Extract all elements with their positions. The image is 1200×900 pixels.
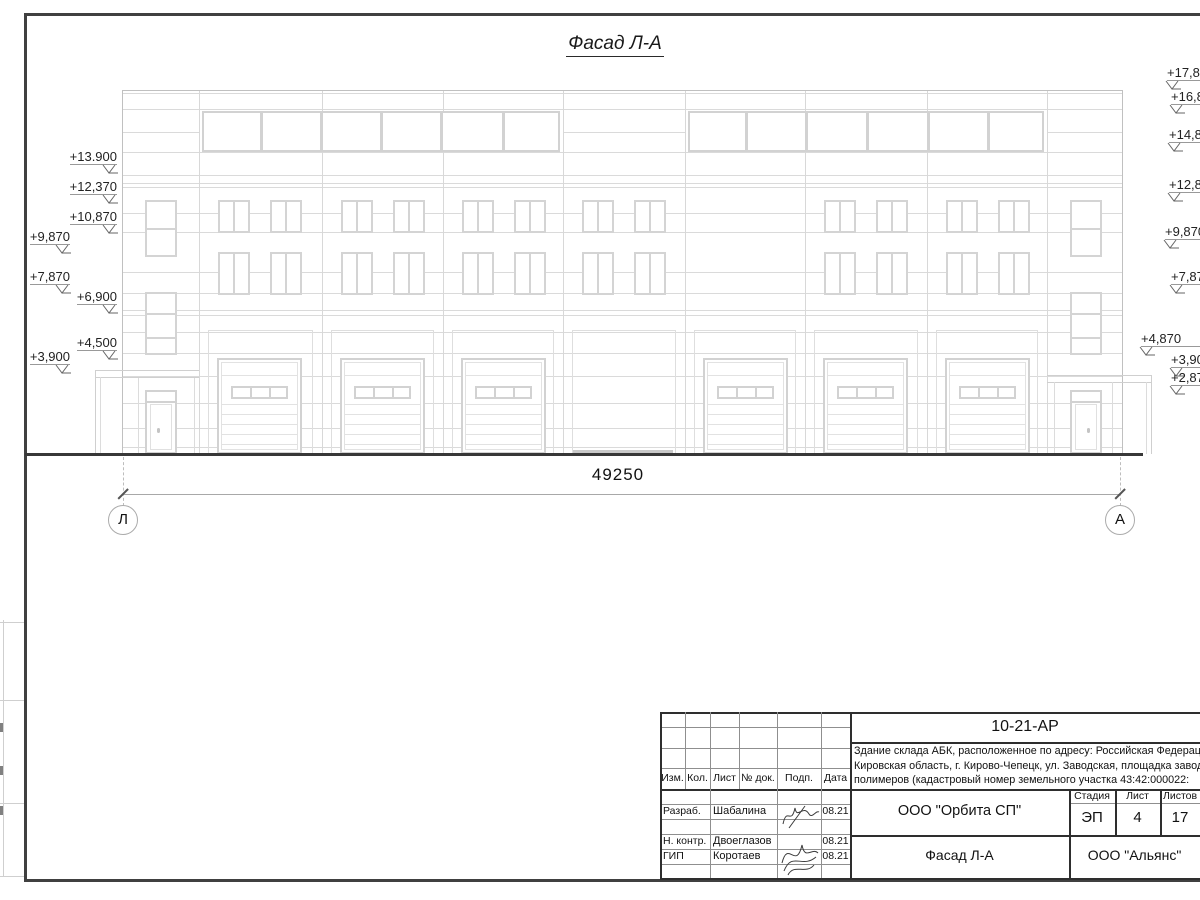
edge-table-line xyxy=(0,622,24,623)
level-arrow-icon xyxy=(102,304,119,315)
door-transom xyxy=(1072,401,1100,403)
window-rail xyxy=(1072,337,1100,339)
level-arrow-icon xyxy=(1169,385,1186,396)
garage-recess xyxy=(572,330,676,454)
level-arrow-icon xyxy=(1139,346,1156,357)
garage-slat xyxy=(708,424,783,425)
garage-slat xyxy=(466,444,541,445)
clerestory-mullion xyxy=(805,113,808,150)
facade-line xyxy=(122,187,1123,188)
garage-slat xyxy=(466,404,541,405)
level-arrow-icon xyxy=(55,244,72,255)
window-mullion xyxy=(649,202,651,231)
titleblock-line xyxy=(710,712,711,878)
ground-line xyxy=(25,453,1143,456)
elevation-mark: +9,870 xyxy=(30,230,70,245)
extension-line xyxy=(123,457,124,506)
window-mullion xyxy=(961,202,963,231)
garage-window-mullion xyxy=(755,388,757,397)
window-mullion xyxy=(529,202,531,231)
contractor: ООО "Альянс" xyxy=(1069,835,1200,878)
garage-window-mullion xyxy=(269,388,271,397)
facade-line xyxy=(122,175,1123,176)
garage-slat xyxy=(345,434,420,435)
window-mullion xyxy=(891,254,893,293)
col-izm: Изм. xyxy=(660,768,685,789)
window-rail xyxy=(147,337,175,339)
garage-slat xyxy=(950,404,1025,405)
sheet-label: Лист xyxy=(1115,789,1160,803)
edge-table-text-fragment xyxy=(0,766,3,775)
window-mullion xyxy=(233,202,235,231)
titleblock-line xyxy=(1069,789,1071,880)
window-mullion xyxy=(233,254,235,293)
elevation-mark: +3,900 xyxy=(1171,353,1200,368)
garage-window-strip xyxy=(837,386,894,399)
clerestory-mullion xyxy=(380,113,383,150)
col-list: Лист xyxy=(710,768,739,789)
stair-window xyxy=(1070,292,1102,355)
titleblock-line xyxy=(821,712,822,878)
garage-window-mullion xyxy=(997,388,999,397)
garage-window-strip xyxy=(959,386,1016,399)
facade-line xyxy=(122,109,1123,110)
signature-nkontr-gip xyxy=(776,833,820,877)
garage-slat xyxy=(950,444,1025,445)
garage-window-strip xyxy=(717,386,774,399)
stair-window xyxy=(145,292,177,355)
window-mullion xyxy=(1013,202,1015,231)
garage-slat xyxy=(466,414,541,415)
garage-slat xyxy=(345,424,420,425)
garage-window-mullion xyxy=(392,388,394,397)
door-panel xyxy=(150,404,172,450)
titleblock-line xyxy=(850,742,1200,744)
niche-line xyxy=(1112,382,1113,454)
level-arrow-icon xyxy=(1167,142,1184,153)
elevation-mark: +7,870 xyxy=(30,270,70,285)
clerestory-mullion xyxy=(502,113,505,150)
window-mullion xyxy=(408,202,410,231)
clerestory-mullion xyxy=(866,113,869,150)
titleblock-line xyxy=(739,712,740,789)
axis-bubble-right: А xyxy=(1105,505,1135,535)
level-arrow-icon xyxy=(1169,284,1186,295)
garage-slat xyxy=(950,414,1025,415)
canopy-column xyxy=(95,370,96,454)
garage-slat xyxy=(222,404,297,405)
garage-slat xyxy=(466,424,541,425)
sheet-number: 4 xyxy=(1115,803,1160,835)
clerestory-mullion xyxy=(320,113,323,150)
dimension-line xyxy=(123,494,1120,495)
garage-slat xyxy=(345,444,420,445)
description-line-1: Здание склада АБК, расположенное по адре… xyxy=(854,744,1200,759)
clerestory-mullion xyxy=(927,113,930,150)
garage-slat xyxy=(828,375,903,376)
garage-window-strip xyxy=(231,386,288,399)
elevation-mark: +14,870 xyxy=(1169,128,1200,143)
elevation-mark: +13.900 xyxy=(70,150,117,165)
edge-table-text-fragment xyxy=(0,806,3,815)
garage-window-mullion xyxy=(250,388,252,397)
sheets-total: 17 xyxy=(1160,803,1200,835)
title-block: 10-21-АР Здание склада АБК, расположенно… xyxy=(660,712,1200,880)
garage-slat xyxy=(345,375,420,376)
garage-slat xyxy=(345,404,420,405)
titleblock-line xyxy=(1160,789,1162,835)
window-mullion xyxy=(649,254,651,293)
garage-window-strip xyxy=(354,386,411,399)
window-mullion xyxy=(839,254,841,293)
col-data: Дата xyxy=(821,768,850,789)
elevation-mark: +7,870 xyxy=(1171,270,1200,285)
garage-slat xyxy=(222,444,297,445)
door-handle xyxy=(1087,428,1090,433)
sheets-label: Листов xyxy=(1160,789,1200,803)
garage-slat xyxy=(222,414,297,415)
door-handle xyxy=(157,428,160,433)
facade-line xyxy=(122,315,1123,316)
panel-joint xyxy=(563,90,564,454)
description-line-3: полимеров (кадастровый номер земельного … xyxy=(854,773,1200,788)
garage-window-mullion xyxy=(494,388,496,397)
description-line-2: Кировская область, г. Кирово-Чепецк, ул.… xyxy=(854,759,1200,774)
dimension-text: 49250 xyxy=(540,465,696,485)
facade-line xyxy=(122,132,199,133)
window-rail xyxy=(147,313,175,315)
window-mullion xyxy=(839,202,841,231)
garage-slat xyxy=(466,375,541,376)
signature-razrab xyxy=(779,800,821,832)
date-nkontr: 08.21 xyxy=(821,834,850,849)
garage-window-strip xyxy=(475,386,532,399)
garage-slat xyxy=(708,414,783,415)
titleblock-line xyxy=(685,712,686,789)
project-code: 10-21-АР xyxy=(850,712,1200,741)
level-arrow-icon xyxy=(102,224,119,235)
garage-window-mullion xyxy=(978,388,980,397)
elevation-mark: +16,870 xyxy=(1171,90,1200,105)
edge-table-text-fragment xyxy=(0,723,3,732)
window-mullion xyxy=(477,254,479,293)
door-panel xyxy=(1075,404,1097,450)
garage-slat xyxy=(345,414,420,415)
elevation-mark: +6,900 xyxy=(77,290,117,305)
elevation-mark: +12,370 xyxy=(70,180,117,195)
window-mullion xyxy=(356,254,358,293)
panel-joint xyxy=(199,90,200,454)
garage-window-mullion xyxy=(373,388,375,397)
edge-table-line xyxy=(3,620,4,877)
garage-slat xyxy=(222,424,297,425)
garage-slat xyxy=(466,434,541,435)
level-arrow-icon xyxy=(1167,192,1184,203)
elevation-mark: +10,870 xyxy=(70,210,117,225)
garage-slat xyxy=(708,434,783,435)
garage-slat xyxy=(708,444,783,445)
garage-slat xyxy=(708,404,783,405)
window-mullion xyxy=(529,254,531,293)
elevation-mark: +4,870 xyxy=(1141,332,1200,347)
level-arrow-icon xyxy=(55,284,72,295)
elevation-mark: +3,900 xyxy=(30,350,70,365)
window-mullion xyxy=(285,254,287,293)
canopy-line xyxy=(1047,382,1152,383)
garage-slat xyxy=(950,434,1025,435)
window-mullion xyxy=(1013,254,1015,293)
facade-line xyxy=(122,93,1123,94)
garage-slat xyxy=(828,434,903,435)
parapet-top xyxy=(122,90,1123,91)
window-rail xyxy=(147,228,175,230)
role-nkontr: Н. контр. xyxy=(663,834,712,849)
garage-slat xyxy=(950,424,1025,425)
window-mullion xyxy=(477,202,479,231)
elevation-mark: +17,870 xyxy=(1167,66,1200,81)
niche-line xyxy=(1054,382,1055,454)
window-mullion xyxy=(356,202,358,231)
name-razrab: Шабалина xyxy=(713,804,775,819)
axis-bubble-left: Л xyxy=(108,505,138,535)
titleblock-line xyxy=(1115,789,1117,835)
clerestory-mullion xyxy=(440,113,443,150)
facade-line xyxy=(122,152,1123,153)
clerestory-mullion xyxy=(260,113,263,150)
niche-line xyxy=(194,378,195,454)
garage-slat xyxy=(708,375,783,376)
garage-slat xyxy=(222,434,297,435)
elevation-mark: +12,870 xyxy=(1169,178,1200,193)
door-transom xyxy=(147,401,175,403)
role-gip: ГИП xyxy=(663,849,712,864)
stage-label: Стадия xyxy=(1069,789,1115,803)
clerestory-mullion xyxy=(745,113,748,150)
garage-slat xyxy=(828,444,903,445)
titleblock-line xyxy=(1069,803,1200,804)
canopy-line xyxy=(1047,375,1152,376)
axis-label-left: Л xyxy=(118,511,128,528)
building-left-edge xyxy=(122,90,123,454)
date-razrab: 08.21 xyxy=(821,804,850,819)
titleblock-line xyxy=(850,835,1200,837)
garage-slat xyxy=(950,375,1025,376)
window-mullion xyxy=(408,254,410,293)
level-arrow-icon xyxy=(102,194,119,205)
level-arrow-icon xyxy=(102,350,119,361)
elevation-mark: +9,870 xyxy=(1165,225,1200,240)
titleblock-line xyxy=(660,789,1200,791)
window-mullion xyxy=(961,254,963,293)
panel-joint xyxy=(685,90,686,454)
building-right-edge xyxy=(1122,90,1123,454)
window-rail xyxy=(1072,228,1100,230)
level-arrow-icon xyxy=(102,164,119,175)
project-description: Здание склада АБК, расположенное по адре… xyxy=(854,744,1200,789)
panel-joint xyxy=(1047,90,1048,454)
facade-line xyxy=(122,183,1123,184)
titleblock-line xyxy=(660,712,662,880)
edge-table-line xyxy=(0,700,24,701)
garage-window-mullion xyxy=(736,388,738,397)
niche-line xyxy=(138,378,139,454)
garage-slat xyxy=(828,404,903,405)
level-arrow-icon xyxy=(1163,239,1180,250)
level-arrow-icon xyxy=(1169,104,1186,115)
garage-slat xyxy=(828,424,903,425)
facade-line xyxy=(1047,132,1123,133)
canopy-line xyxy=(95,370,199,371)
garage-window-mullion xyxy=(856,388,858,397)
drawing-sheet: { "sheet": { "drawing_title": "Фасад Л-А… xyxy=(0,0,1200,900)
name-gip: Коротаев xyxy=(713,849,775,864)
elevation-mark: +4,500 xyxy=(77,336,117,351)
sheet-title: Фасад Л-А xyxy=(850,835,1069,878)
facade-line xyxy=(122,310,1123,311)
edge-table-line xyxy=(0,803,24,804)
window-rail xyxy=(1072,313,1100,315)
axis-label-right: А xyxy=(1115,511,1125,528)
titleblock-line xyxy=(850,712,852,880)
garage-slat xyxy=(828,414,903,415)
col-kol: Кол. xyxy=(685,768,710,789)
garage-slat xyxy=(222,375,297,376)
canopy-column xyxy=(1146,382,1147,454)
edge-table-line xyxy=(0,876,24,877)
stage-value: ЭП xyxy=(1069,803,1115,835)
name-nkontr: Двоеглазов xyxy=(713,834,775,849)
role-razrab: Разраб. xyxy=(663,804,712,819)
level-arrow-icon xyxy=(55,364,72,375)
window-mullion xyxy=(891,202,893,231)
canopy-column xyxy=(100,377,101,454)
window-mullion xyxy=(597,254,599,293)
facade-line xyxy=(563,132,685,133)
window-mullion xyxy=(285,202,287,231)
organization: ООО "Орбита СП" xyxy=(850,789,1069,835)
titleblock-line xyxy=(660,712,1200,714)
clerestory-mullion xyxy=(987,113,990,150)
elevation-mark: +2,870 xyxy=(1171,371,1200,386)
canopy-line xyxy=(95,377,199,378)
garage-window-mullion xyxy=(875,388,877,397)
col-ndok: № док. xyxy=(739,768,777,789)
window-mullion xyxy=(597,202,599,231)
canopy-column xyxy=(1151,375,1152,454)
titleblock-line xyxy=(660,878,1200,880)
garage-window-mullion xyxy=(513,388,515,397)
col-podp: Подп. xyxy=(777,768,821,789)
extension-line xyxy=(1120,457,1121,506)
date-gip: 08.21 xyxy=(821,849,850,864)
